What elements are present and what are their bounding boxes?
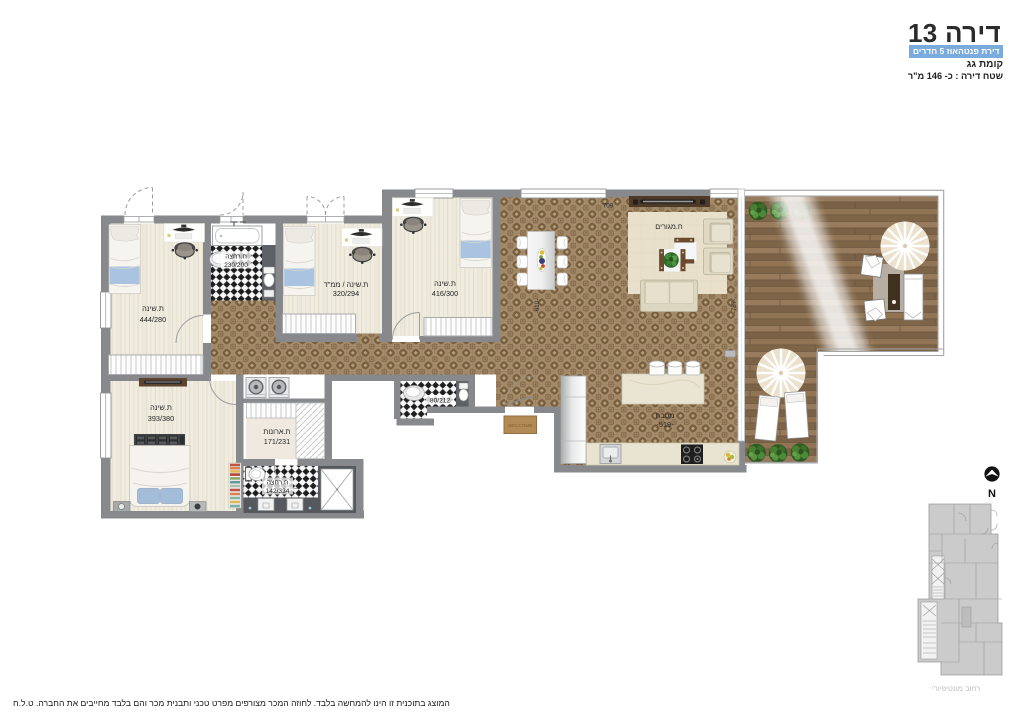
svg-text:142/334: 142/334 bbox=[266, 488, 290, 495]
svg-text:ת.שינה / ממ"ד: ת.שינה / ממ"ד bbox=[324, 280, 369, 289]
svg-text:444/280: 444/280 bbox=[140, 315, 166, 324]
svg-text:80/212: 80/212 bbox=[430, 398, 451, 405]
svg-text:WELCOME: WELCOME bbox=[507, 423, 533, 429]
svg-text:N: N bbox=[988, 488, 996, 500]
svg-text:-787-: -787- bbox=[731, 299, 738, 314]
svg-text:ח.רחצה: ח.רחצה bbox=[267, 480, 289, 487]
svg-text:ת.שינה: ת.שינה bbox=[142, 304, 164, 313]
svg-text:ת.שינה: ת.שינה bbox=[434, 279, 456, 288]
svg-text:171/231: 171/231 bbox=[264, 437, 290, 446]
svg-text:ת.שינה: ת.שינה bbox=[150, 403, 172, 412]
svg-text:416/300: 416/300 bbox=[432, 289, 458, 298]
svg-text:709: 709 bbox=[603, 203, 614, 210]
svg-text:320/294: 320/294 bbox=[333, 289, 359, 298]
svg-text:רחוב מונטיפיורי: רחוב מונטיפיורי bbox=[932, 684, 980, 693]
svg-text:מטבח: מטבח bbox=[656, 411, 675, 420]
svg-text:ח.מגורים: ח.מגורים bbox=[655, 222, 683, 231]
svg-text:ח.רחצה: ח.רחצה bbox=[225, 254, 247, 261]
svg-text:-519-: -519- bbox=[656, 420, 674, 429]
svg-text:-610-: -610- bbox=[534, 299, 541, 314]
svg-text:393/380: 393/380 bbox=[148, 414, 174, 423]
svg-text:230/200: 230/200 bbox=[224, 262, 248, 269]
svg-text:ת.ארונות: ת.ארונות bbox=[263, 427, 290, 436]
